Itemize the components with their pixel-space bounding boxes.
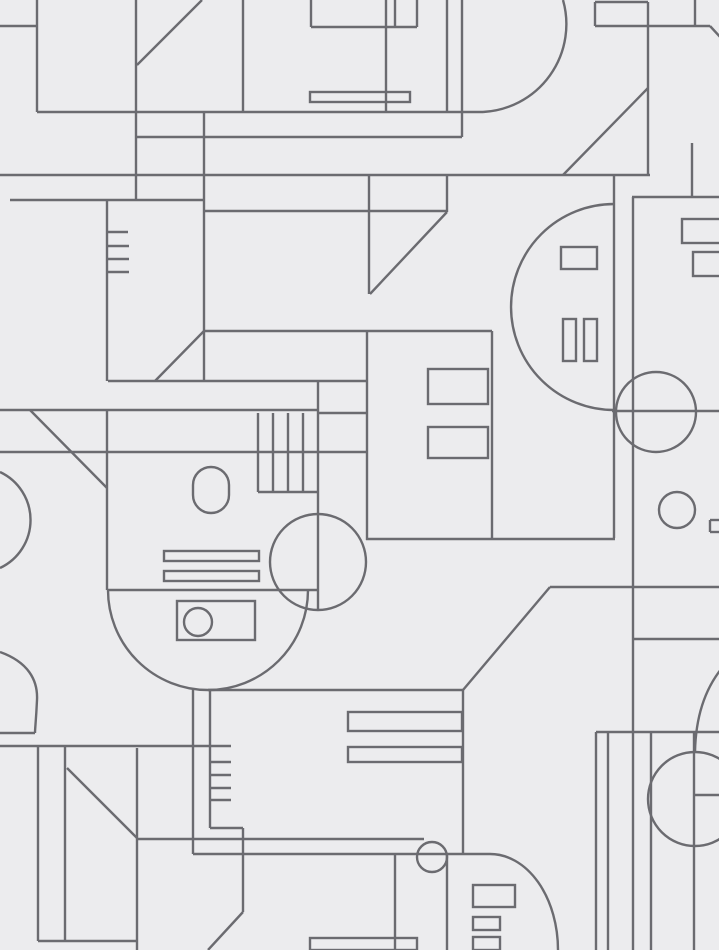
pattern-arc xyxy=(695,668,722,752)
pattern-circle xyxy=(659,492,695,528)
pattern-rect xyxy=(473,937,500,950)
pattern-rect xyxy=(164,571,259,581)
pattern-rect xyxy=(177,601,255,640)
pattern-arc xyxy=(0,472,31,568)
pattern-rect xyxy=(693,252,722,276)
pattern-rect xyxy=(428,369,488,404)
pattern-rect xyxy=(310,938,417,950)
pattern-line xyxy=(563,88,648,175)
pattern-line xyxy=(67,768,137,838)
pattern-rect xyxy=(428,427,488,458)
pattern-line xyxy=(30,410,107,488)
pattern-arc xyxy=(490,854,558,950)
pattern-rect xyxy=(563,319,576,361)
pattern-circle xyxy=(184,608,212,636)
pattern-rect xyxy=(164,551,259,561)
pattern-rect xyxy=(348,712,462,731)
pattern-circle xyxy=(648,752,722,846)
pattern-rect xyxy=(584,319,597,361)
pattern-line xyxy=(137,0,202,65)
pattern-line xyxy=(155,331,204,381)
pattern-rect xyxy=(193,467,229,513)
pattern-rect xyxy=(682,219,722,243)
pattern-line xyxy=(370,212,447,294)
pattern-rect xyxy=(348,747,462,762)
pattern-line xyxy=(463,587,550,690)
pattern-arc xyxy=(483,0,566,112)
pattern-rect xyxy=(310,92,410,102)
pattern-rect xyxy=(473,885,515,907)
pattern-arc xyxy=(0,652,37,733)
pattern-line xyxy=(208,912,243,950)
geometric-line-pattern-svg xyxy=(0,0,722,950)
pattern-rect xyxy=(473,917,500,930)
wallpaper-pattern-image xyxy=(0,0,722,950)
pattern-arc xyxy=(511,204,614,410)
pattern-circle xyxy=(417,842,447,872)
pattern-rect xyxy=(561,247,597,269)
